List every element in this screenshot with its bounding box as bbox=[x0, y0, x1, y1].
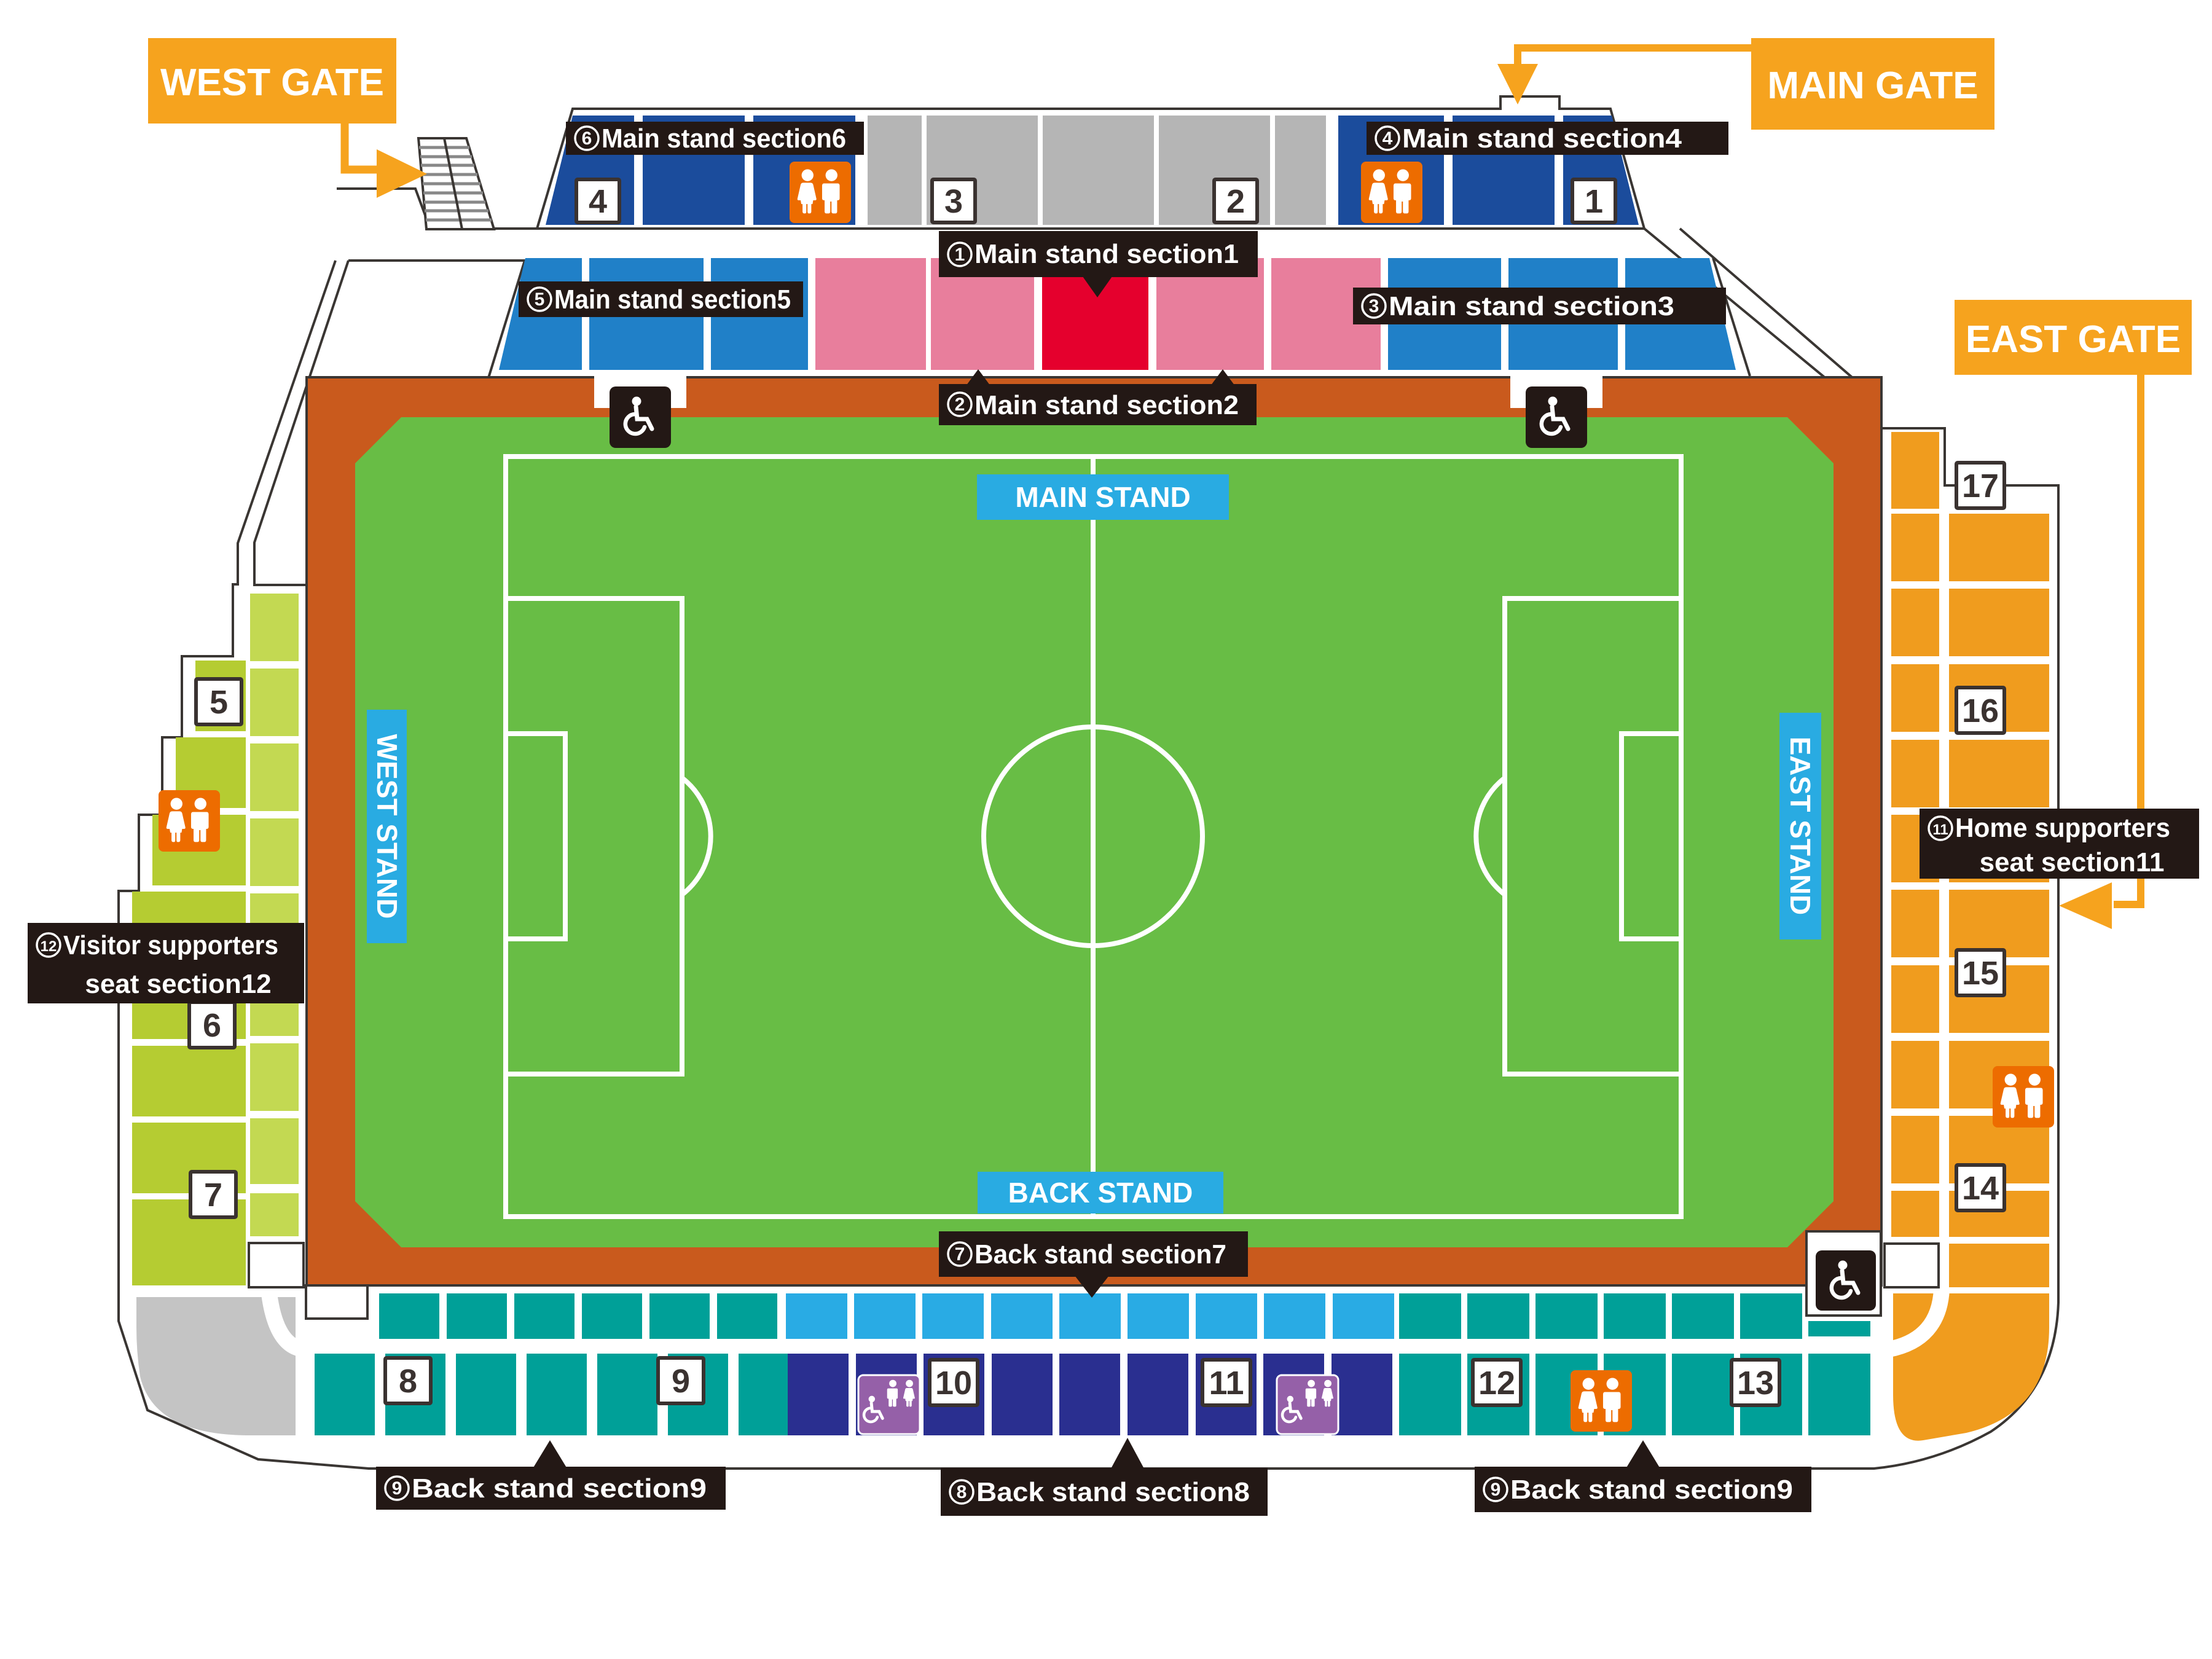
svg-text:15: 15 bbox=[1962, 955, 1999, 992]
svg-text:5: 5 bbox=[535, 289, 545, 310]
svg-text:8: 8 bbox=[399, 1363, 417, 1400]
svg-text:4: 4 bbox=[589, 183, 607, 220]
svg-text:13: 13 bbox=[1737, 1365, 1774, 1402]
svg-text:11: 11 bbox=[1209, 1365, 1244, 1402]
svg-text:Back stand section8: Back stand section8 bbox=[976, 1477, 1250, 1507]
svg-text:MAIN GATE: MAIN GATE bbox=[1767, 65, 1978, 107]
svg-text:8: 8 bbox=[957, 1482, 967, 1502]
svg-text:2: 2 bbox=[1226, 183, 1245, 220]
svg-text:3: 3 bbox=[1369, 296, 1379, 316]
svg-text:MAIN STAND: MAIN STAND bbox=[1015, 481, 1190, 513]
svg-text:7: 7 bbox=[955, 1244, 965, 1265]
svg-text:Visitor supporters: Visitor supporters bbox=[63, 930, 278, 960]
svg-text:Home supporters: Home supporters bbox=[1955, 813, 2170, 843]
svg-text:EAST GATE: EAST GATE bbox=[1966, 318, 2181, 361]
svg-text:12: 12 bbox=[1478, 1365, 1515, 1402]
svg-text:Main stand section1: Main stand section1 bbox=[975, 239, 1239, 269]
svg-text:Back stand section9: Back stand section9 bbox=[412, 1473, 707, 1504]
svg-text:9: 9 bbox=[392, 1478, 402, 1499]
svg-text:4: 4 bbox=[1382, 128, 1393, 149]
svg-text:Main stand section5: Main stand section5 bbox=[554, 284, 791, 315]
svg-text:Main stand section3: Main stand section3 bbox=[1389, 291, 1674, 321]
svg-text:1: 1 bbox=[955, 245, 965, 265]
svg-text:Main stand section6: Main stand section6 bbox=[602, 124, 846, 154]
svg-text:2: 2 bbox=[955, 394, 965, 415]
svg-text:6: 6 bbox=[203, 1007, 221, 1044]
svg-text:seat section11: seat section11 bbox=[1980, 847, 2165, 877]
svg-text:9: 9 bbox=[1491, 1480, 1501, 1500]
svg-text:Back stand section9: Back stand section9 bbox=[1510, 1475, 1793, 1505]
svg-text:17: 17 bbox=[1962, 468, 1999, 504]
svg-text:11: 11 bbox=[1932, 822, 1948, 838]
svg-text:EAST STAND: EAST STAND bbox=[1784, 737, 1816, 916]
svg-text:5: 5 bbox=[210, 684, 228, 721]
svg-text:seat section12: seat section12 bbox=[85, 969, 271, 999]
svg-text:9: 9 bbox=[672, 1363, 690, 1400]
svg-text:1: 1 bbox=[1585, 183, 1603, 220]
svg-text:7: 7 bbox=[204, 1177, 222, 1214]
svg-text:Back stand section7: Back stand section7 bbox=[975, 1239, 1226, 1269]
svg-text:12: 12 bbox=[41, 938, 57, 955]
svg-text:16: 16 bbox=[1962, 692, 1999, 729]
svg-text:3: 3 bbox=[944, 183, 963, 220]
svg-text:WEST GATE: WEST GATE bbox=[160, 61, 384, 104]
svg-text:10: 10 bbox=[935, 1365, 972, 1402]
svg-text:BACK STAND: BACK STAND bbox=[1008, 1177, 1193, 1209]
svg-text:6: 6 bbox=[582, 128, 592, 149]
svg-text:Main stand section2: Main stand section2 bbox=[975, 390, 1239, 420]
svg-text:WEST STAND: WEST STAND bbox=[371, 734, 403, 919]
svg-text:14: 14 bbox=[1962, 1170, 1999, 1207]
svg-text:Main stand section4: Main stand section4 bbox=[1402, 124, 1682, 154]
